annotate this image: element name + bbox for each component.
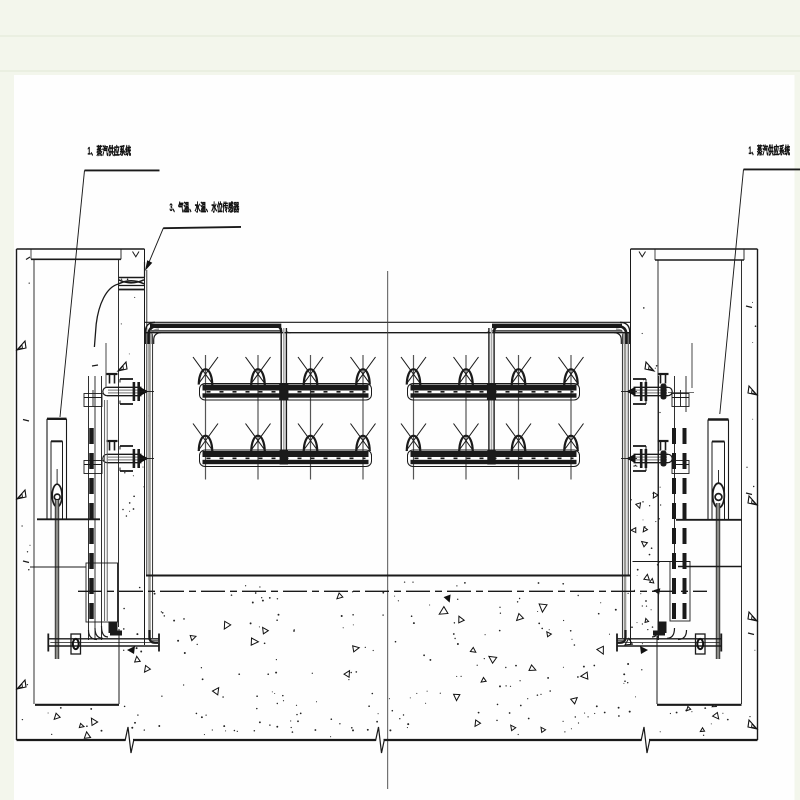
svg-text:1、蒸汽供应系统: 1、蒸汽供应系统 — [749, 142, 791, 156]
svg-text:3、气温、水温、水位传感器: 3、气温、水温、水位传感器 — [170, 199, 240, 213]
svg-text:1、蒸汽供应系统: 1、蒸汽供应系统 — [88, 143, 132, 157]
